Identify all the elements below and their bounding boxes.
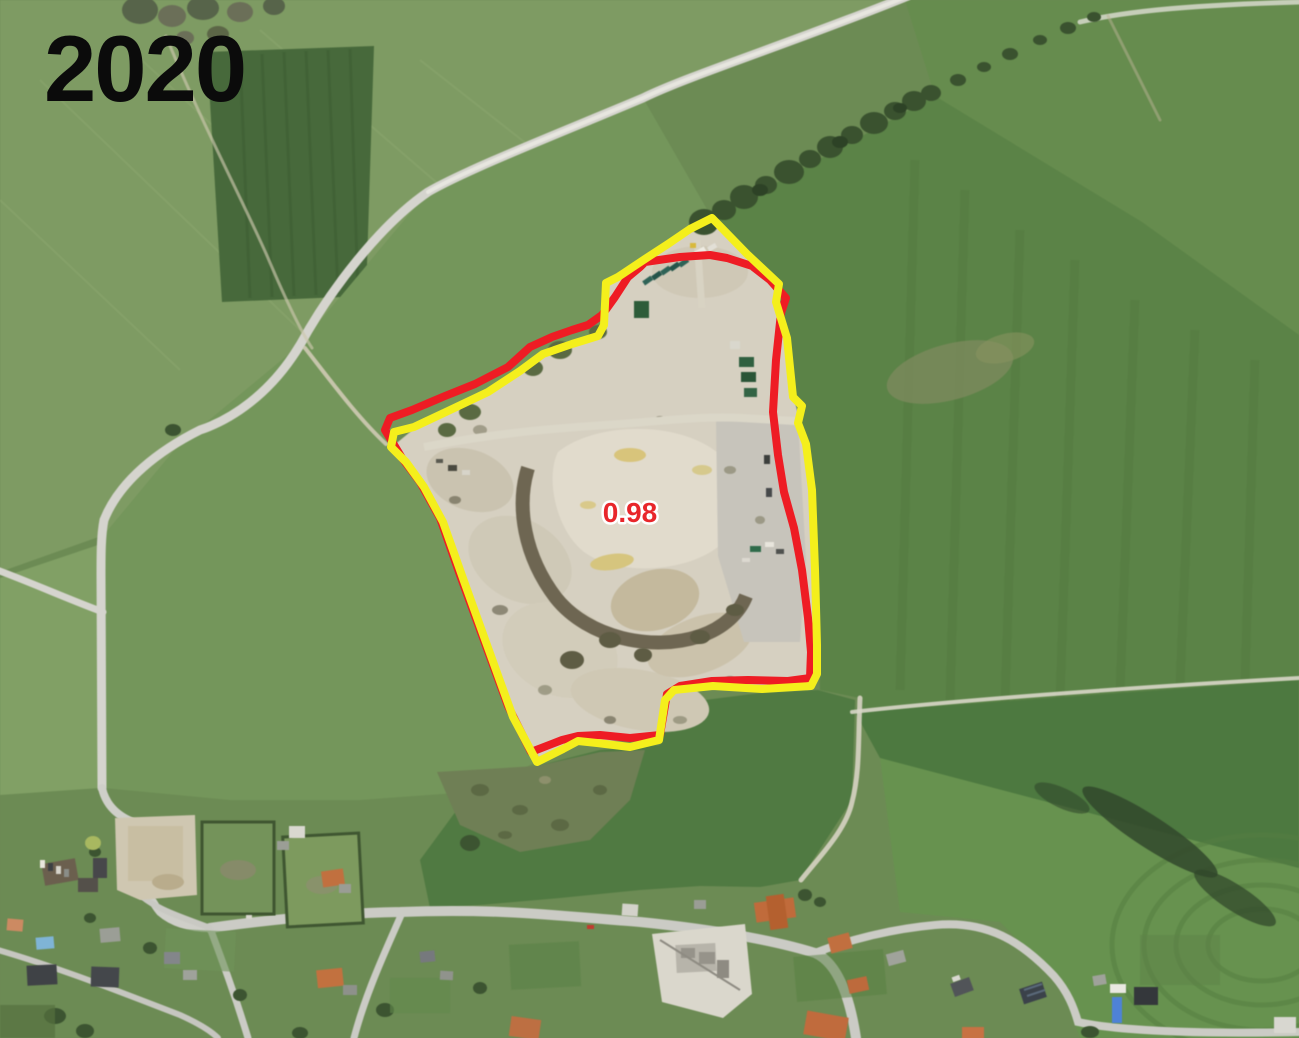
house-roof bbox=[7, 918, 24, 931]
parked-car bbox=[48, 863, 53, 871]
field-left-edge bbox=[0, 545, 100, 795]
swimming-pool bbox=[36, 936, 55, 950]
house-roof bbox=[78, 878, 98, 892]
house-roof bbox=[289, 826, 305, 838]
house-roof bbox=[622, 903, 639, 916]
area-value-label: 0.98 bbox=[603, 497, 658, 528]
dirt-mound bbox=[152, 874, 184, 890]
house-roof bbox=[694, 900, 706, 909]
parked-car bbox=[64, 869, 69, 877]
parked-car bbox=[40, 860, 45, 868]
parked-car bbox=[246, 915, 252, 919]
yellow-tree bbox=[85, 836, 101, 850]
house-roof bbox=[1110, 984, 1126, 993]
swimming-pool bbox=[1112, 997, 1122, 1023]
year-label: 2020 bbox=[44, 16, 245, 121]
house-roof bbox=[26, 964, 57, 986]
parked-car bbox=[56, 866, 61, 874]
house-roof bbox=[339, 884, 351, 893]
excavator-yellow bbox=[690, 243, 696, 248]
house-roof bbox=[962, 1027, 984, 1038]
house-roof bbox=[93, 858, 107, 878]
red-car bbox=[587, 925, 594, 929]
house-roof bbox=[343, 985, 357, 995]
gravel-lot-inner bbox=[128, 826, 183, 881]
aerial-map-2020: 0.98 2020 bbox=[0, 0, 1299, 1038]
house-roof bbox=[91, 967, 120, 988]
house-roof bbox=[316, 968, 344, 989]
house-roof bbox=[277, 841, 289, 850]
house-roof bbox=[440, 971, 453, 981]
house-roof bbox=[419, 950, 435, 963]
house-roof bbox=[1134, 987, 1158, 1005]
house-roof bbox=[183, 970, 197, 980]
house-roof bbox=[1274, 1017, 1296, 1033]
house-roof bbox=[164, 952, 180, 964]
house-roof bbox=[99, 927, 120, 943]
aerial-photo: 0.98 2020 bbox=[0, 0, 1299, 1038]
